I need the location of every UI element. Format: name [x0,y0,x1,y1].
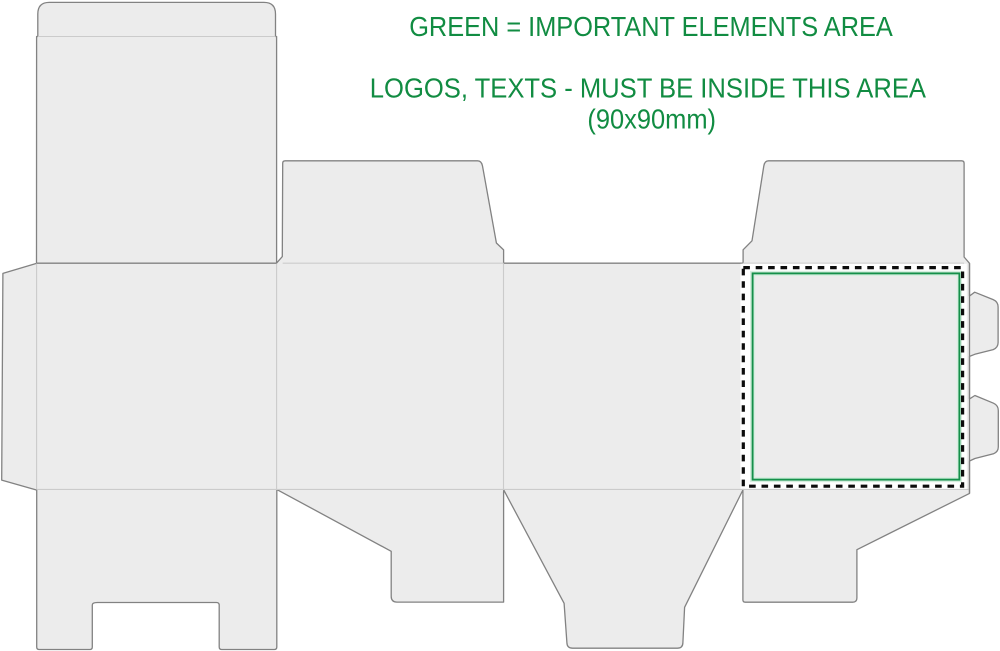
svg-text:LOGOS, TEXTS - MUST BE INSIDE: LOGOS, TEXTS - MUST BE INSIDE THIS AREA [370,72,926,103]
svg-text:GREEN = IMPORTANT ELEMENTS ARE: GREEN = IMPORTANT ELEMENTS AREA [409,11,893,42]
svg-text:(90x90mm): (90x90mm) [587,103,716,134]
